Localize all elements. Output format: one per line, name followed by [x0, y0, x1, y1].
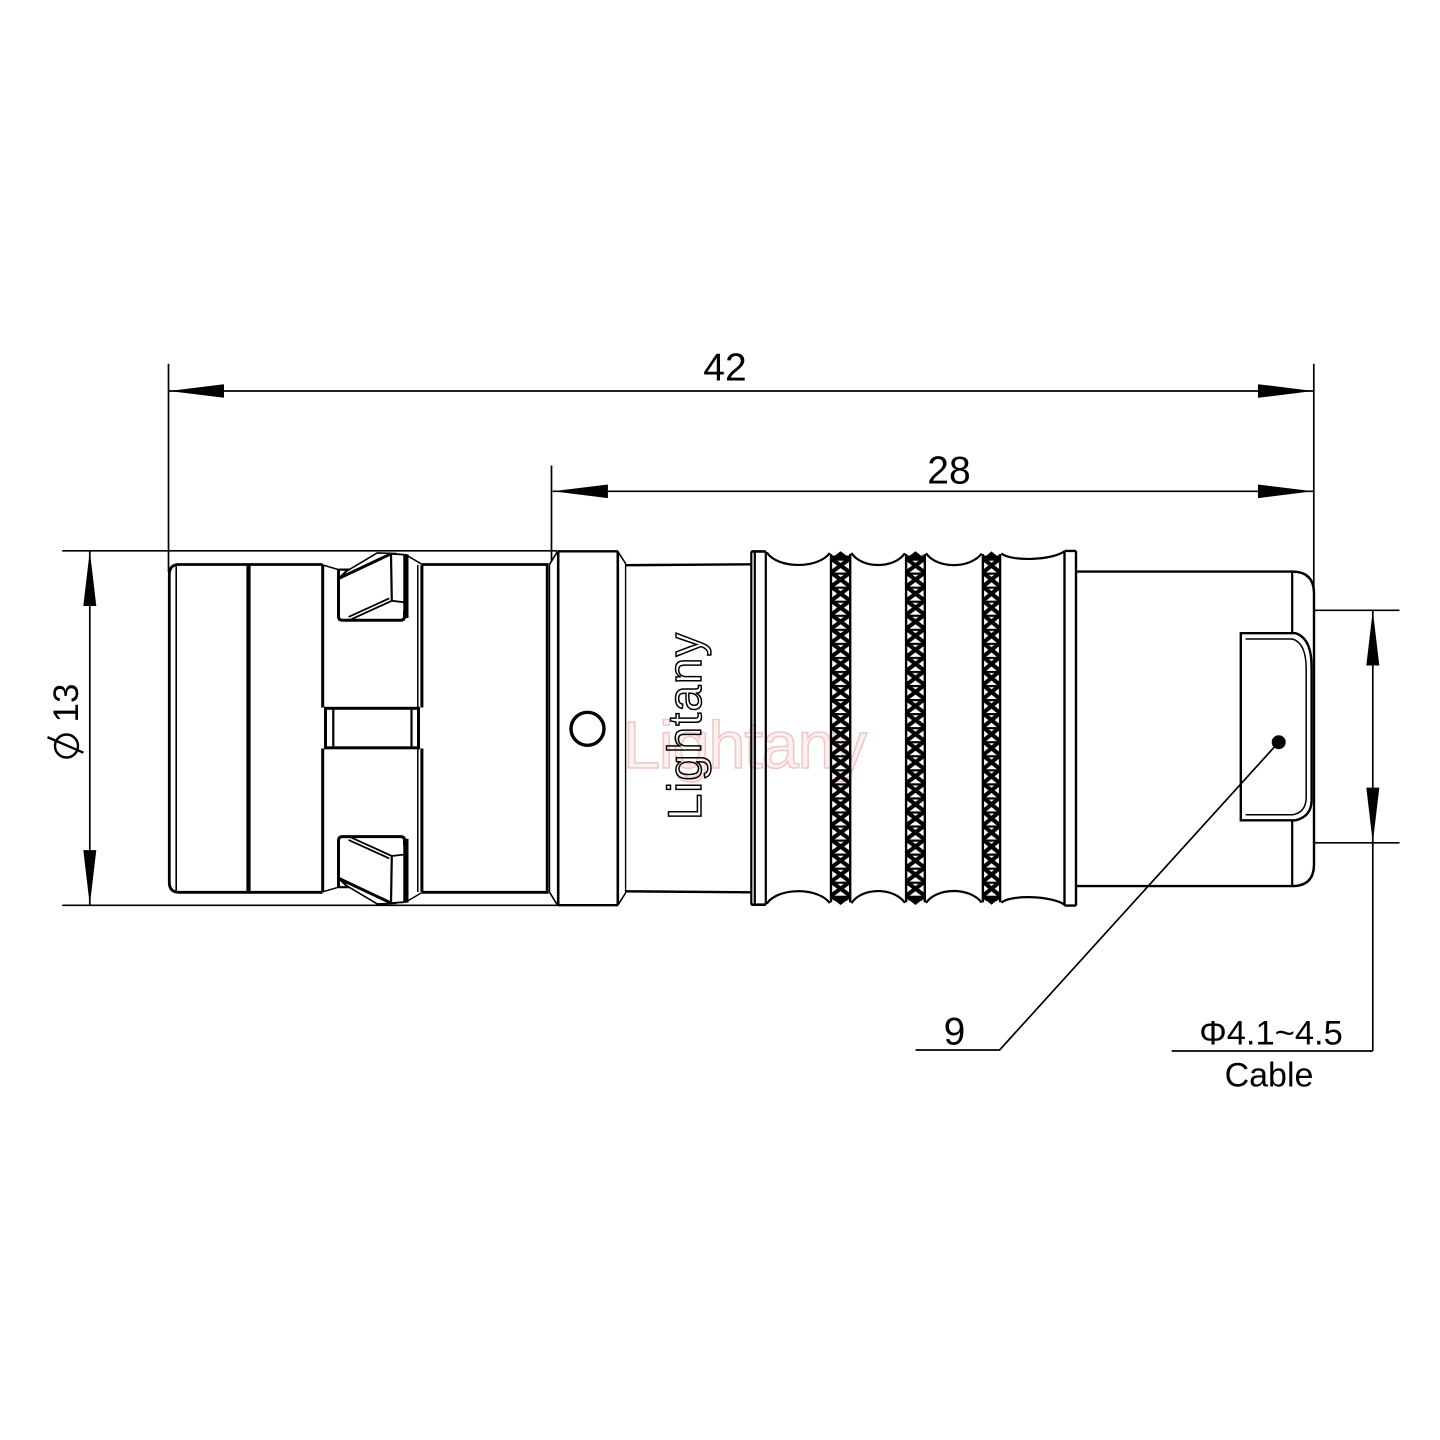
- svg-text:28: 28: [927, 450, 970, 493]
- svg-text:13: 13: [47, 684, 86, 723]
- svg-text:Lightany: Lightany: [658, 633, 711, 821]
- svg-text:Cable: Cable: [1225, 1057, 1314, 1095]
- svg-text:42: 42: [703, 347, 746, 390]
- svg-text:Φ4.1~4.5: Φ4.1~4.5: [1199, 1014, 1343, 1052]
- svg-text:9: 9: [944, 1010, 966, 1053]
